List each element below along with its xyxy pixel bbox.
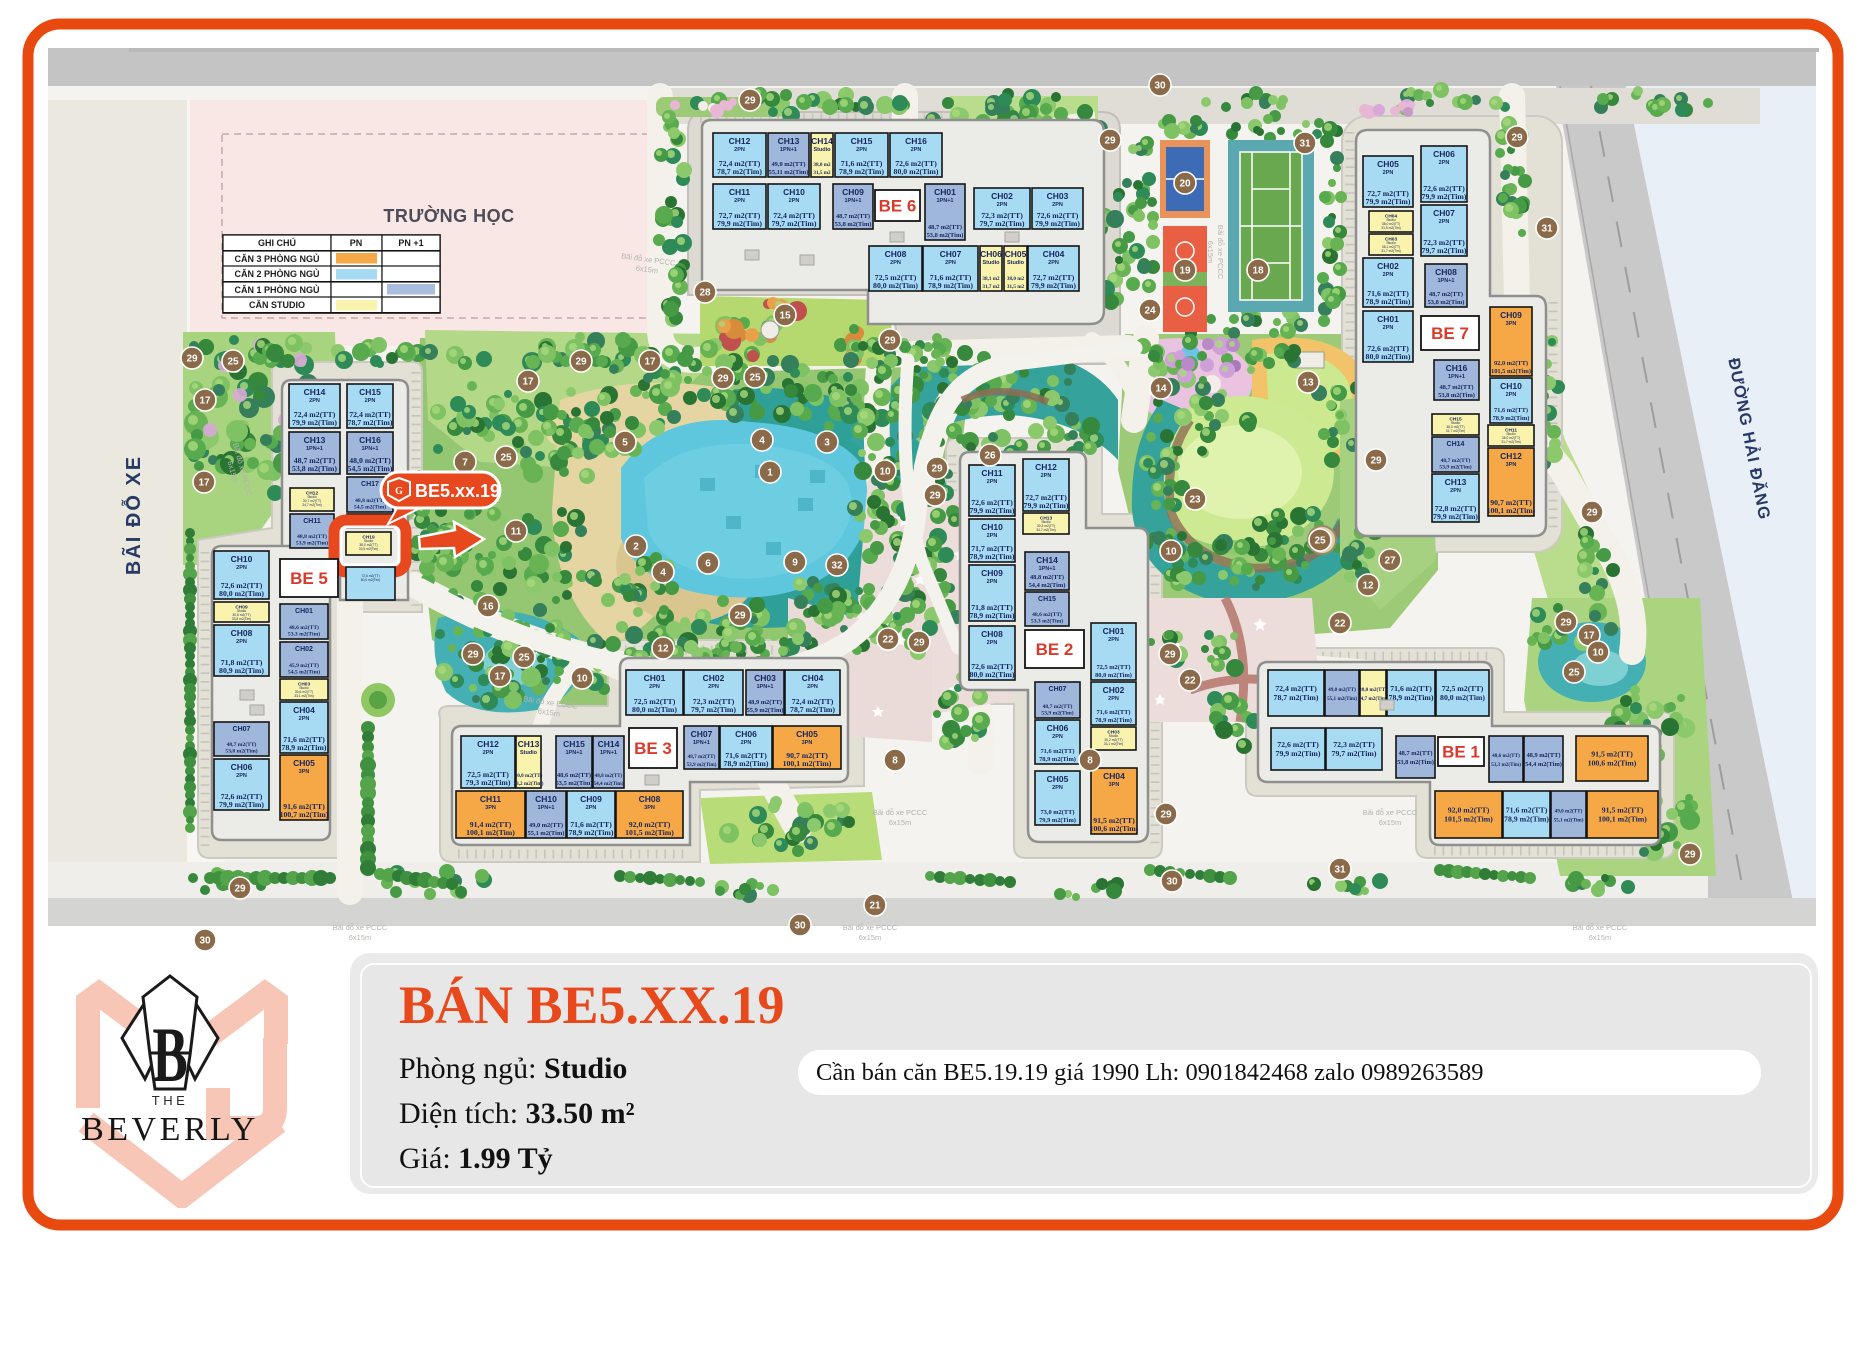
svg-text:2PN: 2PN — [1506, 392, 1517, 398]
svg-text:6x15m: 6x15m — [1379, 818, 1402, 827]
svg-text:BE 6: BE 6 — [879, 197, 917, 216]
svg-text:48,6 m2(TT): 48,6 m2(TT) — [557, 772, 591, 779]
svg-text:3PN: 3PN — [1109, 782, 1120, 788]
svg-text:79,9 m2(Tim): 79,9 m2(Tim) — [1039, 817, 1076, 824]
svg-text:CH02: CH02 — [1377, 261, 1399, 271]
svg-text:80,0 m2(Tim): 80,0 m2(Tim) — [873, 281, 918, 290]
svg-text:2PN: 2PN — [708, 684, 719, 690]
svg-text:CH06: CH06 — [1433, 149, 1455, 159]
svg-text:78,7 m2(Tim): 78,7 m2(Tim) — [1274, 693, 1319, 702]
svg-text:2PN: 2PN — [987, 533, 998, 539]
svg-text:79,9 m2(Tim): 79,9 m2(Tim) — [1422, 192, 1467, 201]
svg-text:48,7 m2(TT): 48,7 m2(TT) — [1439, 384, 1473, 391]
svg-text:12: 12 — [1362, 581, 1374, 592]
svg-text:1PN+1: 1PN+1 — [780, 147, 797, 153]
svg-text:1PN+1: 1PN+1 — [306, 446, 323, 452]
svg-text:CH09: CH09 — [842, 187, 864, 197]
svg-text:CH08: CH08 — [639, 794, 661, 804]
svg-text:49,0 m2(TT): 49,0 m2(TT) — [1328, 686, 1356, 693]
svg-text:Studio: Studio — [982, 260, 1000, 266]
svg-text:Bãi đỗ xe PCCC: Bãi đỗ xe PCCC — [843, 923, 898, 932]
svg-text:CH14: CH14 — [304, 387, 326, 397]
svg-text:78,7 m2(Tim): 78,7 m2(Tim) — [348, 418, 393, 427]
svg-text:100,1 m2(Tim): 100,1 m2(Tim) — [466, 828, 515, 837]
svg-text:79,9 m2(Tim): 79,9 m2(Tim) — [1276, 749, 1321, 758]
svg-text:25: 25 — [749, 373, 761, 384]
svg-text:29: 29 — [1511, 133, 1523, 144]
svg-text:29: 29 — [234, 884, 246, 895]
svg-text:CH03: CH03 — [1047, 191, 1069, 201]
svg-text:CH06: CH06 — [231, 762, 253, 772]
svg-text:1PN+1: 1PN+1 — [362, 446, 379, 452]
svg-text:79,9 m2(Tim): 79,9 m2(Tim) — [1366, 197, 1411, 206]
svg-text:2PN: 2PN — [890, 260, 901, 266]
svg-text:78,9 m2(Tim): 78,9 m2(Tim) — [1039, 756, 1076, 763]
svg-text:2PN: 2PN — [299, 716, 310, 722]
svg-text:CH02: CH02 — [703, 673, 725, 683]
svg-text:29: 29 — [913, 638, 925, 649]
svg-text:3PN: 3PN — [1506, 462, 1517, 468]
svg-text:29: 29 — [717, 374, 729, 385]
svg-text:10: 10 — [1592, 648, 1604, 659]
svg-text:31,7 m2(Tim): 31,7 m2(Tim) — [1381, 249, 1400, 253]
svg-text:71,6 m2(TT): 71,6 m2(TT) — [1494, 407, 1528, 414]
svg-text:CH14: CH14 — [1036, 555, 1058, 565]
svg-text:78,9 m2(Tim): 78,9 m2(Tim) — [724, 759, 769, 768]
svg-text:PN: PN — [350, 238, 363, 248]
svg-text:38,0 m2: 38,0 m2 — [813, 162, 831, 168]
svg-text:53,8 m2(Tim): 53,8 m2(Tim) — [225, 748, 257, 755]
svg-text:12: 12 — [657, 644, 669, 655]
svg-text:79,9 m2(Tim): 79,9 m2(Tim) — [717, 219, 762, 228]
svg-text:11: 11 — [511, 527, 522, 538]
svg-text:79,9 m2(Tim): 79,9 m2(Tim) — [1024, 501, 1069, 510]
svg-text:Bãi đỗ xe PCCC: Bãi đỗ xe PCCC — [1573, 923, 1628, 932]
svg-text:38,1 m2: 38,1 m2 — [982, 276, 1000, 282]
svg-text:21: 21 — [869, 901, 881, 912]
svg-text:CH11: CH11 — [303, 518, 321, 525]
svg-text:2PN: 2PN — [1383, 170, 1394, 176]
svg-text:18: 18 — [1252, 266, 1264, 277]
svg-text:33,2 m2(Tim): 33,2 m2(Tim) — [514, 780, 544, 787]
svg-text:CH12: CH12 — [1035, 462, 1057, 472]
svg-text:CH09: CH09 — [981, 568, 1003, 578]
svg-text:27: 27 — [1384, 556, 1396, 567]
svg-text:2PN: 2PN — [987, 479, 998, 485]
svg-text:20: 20 — [1179, 179, 1191, 190]
svg-text:8: 8 — [892, 756, 898, 767]
svg-text:54,5 m2(Tim): 54,5 m2(Tim) — [288, 669, 320, 676]
svg-text:THE: THE — [152, 1093, 189, 1108]
svg-text:CH04: CH04 — [1043, 249, 1065, 259]
svg-text:71,6 m2(TT): 71,6 m2(TT) — [1040, 748, 1074, 755]
svg-text:79,9 m2(Tim): 79,9 m2(Tim) — [1433, 512, 1478, 521]
svg-text:53,9 m2(Tim): 53,9 m2(Tim) — [687, 761, 717, 768]
svg-text:29: 29 — [929, 491, 941, 502]
svg-text:79,7 m2(Tim): 79,7 m2(Tim) — [1332, 749, 1377, 758]
svg-text:CH13: CH13 — [778, 136, 800, 146]
svg-text:CH12: CH12 — [477, 739, 499, 749]
svg-text:55,11 m2(Tim): 55,11 m2(Tim) — [769, 169, 809, 176]
svg-text:53,5 m2(Tim): 53,5 m2(Tim) — [556, 780, 593, 787]
svg-text:6x15m: 6x15m — [1206, 241, 1215, 264]
svg-text:5: 5 — [622, 438, 628, 449]
svg-text:2PN: 2PN — [734, 198, 745, 204]
svg-text:2PN: 2PN — [586, 805, 597, 811]
svg-text:49,0 m2(TT): 49,0 m2(TT) — [771, 161, 805, 168]
svg-text:CH08: CH08 — [885, 249, 907, 259]
svg-text:33,5 m2(Tim): 33,5 m2(Tim) — [359, 547, 378, 551]
svg-text:72,5 m2(TT): 72,5 m2(TT) — [1442, 684, 1484, 693]
svg-text:CH05: CH05 — [1047, 774, 1069, 784]
svg-text:CH05: CH05 — [796, 729, 818, 739]
svg-text:53,8 m2(Tim): 53,8 m2(Tim) — [835, 221, 872, 228]
svg-text:6: 6 — [705, 559, 711, 570]
svg-text:45,9 m2(TT): 45,9 m2(TT) — [289, 662, 319, 669]
svg-text:BE 3: BE 3 — [634, 739, 672, 758]
svg-text:CH02: CH02 — [1103, 685, 1125, 695]
svg-text:78,9 m2(Tim): 78,9 m2(Tim) — [970, 552, 1015, 561]
svg-text:CĂN STUDIO: CĂN STUDIO — [249, 300, 305, 310]
svg-text:CH17: CH17 — [361, 481, 379, 488]
svg-text:25: 25 — [500, 453, 512, 464]
svg-text:30: 30 — [1166, 877, 1178, 888]
svg-text:CH01: CH01 — [644, 673, 666, 683]
svg-text:33,8 m2(Tim): 33,8 m2(Tim) — [232, 617, 251, 621]
svg-text:53,9 m2(Tim): 53,9 m2(Tim) — [1439, 464, 1471, 471]
svg-text:19: 19 — [1179, 266, 1191, 277]
svg-text:2PN: 2PN — [1450, 488, 1461, 494]
svg-text:14: 14 — [1155, 384, 1167, 395]
svg-text:26: 26 — [984, 451, 996, 462]
svg-text:CH10: CH10 — [783, 187, 805, 197]
svg-text:30,0 m2(TT): 30,0 m2(TT) — [515, 772, 543, 779]
svg-text:17: 17 — [199, 396, 211, 407]
svg-text:3PN: 3PN — [485, 805, 496, 811]
svg-text:CH15: CH15 — [1038, 596, 1056, 603]
svg-text:29: 29 — [734, 611, 746, 622]
svg-text:34,7 m2(Tim): 34,7 m2(Tim) — [302, 503, 321, 507]
svg-text:3PN: 3PN — [299, 769, 310, 775]
svg-text:2PN: 2PN — [483, 750, 494, 756]
svg-text:72,5 m2(TT): 72,5 m2(TT) — [1096, 664, 1130, 671]
svg-text:6x15m: 6x15m — [1589, 933, 1612, 942]
svg-text:CH13: CH13 — [304, 435, 326, 445]
svg-text:2PN: 2PN — [1048, 260, 1059, 266]
svg-text:GHI CHÚ: GHI CHÚ — [258, 237, 296, 248]
svg-text:100,1 m2(Tim): 100,1 m2(Tim) — [1598, 815, 1647, 824]
svg-text:2PN: 2PN — [1108, 696, 1119, 702]
svg-text:CH02: CH02 — [295, 646, 313, 653]
svg-text:PN +1: PN +1 — [398, 238, 423, 248]
svg-text:29: 29 — [931, 464, 943, 475]
svg-text:101,5 m2(Tim): 101,5 m2(Tim) — [625, 828, 674, 837]
svg-text:53,8 m2(Tim): 53,8 m2(Tim) — [1438, 392, 1475, 399]
svg-text:31: 31 — [1299, 139, 1311, 150]
svg-text:48,7 m2(TT): 48,7 m2(TT) — [1441, 457, 1471, 464]
svg-text:79,9 m2(Tim): 79,9 m2(Tim) — [1035, 219, 1080, 228]
svg-text:48,6 m2(TT): 48,6 m2(TT) — [1492, 752, 1520, 759]
svg-text:CH04: CH04 — [802, 673, 824, 683]
svg-text:54,4 m2(Tim): 54,4 m2(Tim) — [594, 780, 624, 787]
svg-text:80,0 m2(Tim): 80,0 m2(Tim) — [970, 670, 1015, 679]
svg-text:2PN: 2PN — [1052, 202, 1063, 208]
svg-text:2PN: 2PN — [1041, 473, 1052, 479]
svg-text:48,7 m2(TT): 48,7 m2(TT) — [1398, 750, 1432, 757]
svg-text:91,5 m2(TT): 91,5 m2(TT) — [1591, 750, 1633, 759]
svg-text:CH04: CH04 — [293, 705, 315, 715]
svg-text:CH08: CH08 — [981, 629, 1003, 639]
svg-text:78,9 m2(Tim): 78,9 m2(Tim) — [970, 611, 1015, 620]
svg-text:100,7 m2(Tim): 100,7 m2(Tim) — [280, 810, 329, 819]
svg-text:29: 29 — [186, 354, 198, 365]
svg-text:32: 32 — [831, 561, 843, 572]
svg-text:80,0 m2(Tim): 80,0 m2(Tim) — [1440, 693, 1485, 702]
svg-text:CH09: CH09 — [1500, 310, 1522, 320]
svg-text:CĂN 1 PHÒNG NGỦ: CĂN 1 PHÒNG NGỦ — [234, 284, 319, 295]
svg-text:92,0 m2(TT): 92,0 m2(TT) — [1448, 806, 1490, 815]
svg-text:CH04: CH04 — [1103, 771, 1125, 781]
svg-text:24: 24 — [1144, 306, 1156, 317]
svg-text:25: 25 — [518, 653, 530, 664]
svg-text:2PN: 2PN — [1052, 734, 1063, 740]
svg-text:CH05: CH05 — [1005, 249, 1027, 259]
svg-text:78,9 m2(Tim): 78,9 m2(Tim) — [839, 167, 884, 176]
svg-text:CH10: CH10 — [535, 794, 557, 804]
svg-text:2PN: 2PN — [741, 740, 752, 746]
svg-text:78,9 m2(Tim): 78,9 m2(Tim) — [569, 828, 614, 837]
svg-text:2PN: 2PN — [1383, 325, 1394, 331]
svg-text:72,6 m2(TT): 72,6 m2(TT) — [1277, 740, 1319, 749]
svg-text:79,9 m2(Tim): 79,9 m2(Tim) — [219, 800, 264, 809]
svg-text:CH10: CH10 — [1500, 381, 1522, 391]
svg-text:79,9 m2(Tim): 79,9 m2(Tim) — [1031, 281, 1076, 290]
svg-text:48,7 m2(TT): 48,7 m2(TT) — [836, 213, 870, 220]
svg-text:6x15m: 6x15m — [889, 818, 912, 827]
svg-text:79,7 m2(Tim): 79,7 m2(Tim) — [980, 219, 1025, 228]
svg-text:3PN: 3PN — [802, 740, 813, 746]
svg-text:BE 1: BE 1 — [1442, 743, 1480, 762]
svg-text:72,3 m2(TT): 72,3 m2(TT) — [1333, 740, 1375, 749]
svg-text:53,8 m2(Tim): 53,8 m2(Tim) — [1397, 759, 1434, 766]
svg-text:2PN: 2PN — [734, 147, 745, 153]
svg-text:29: 29 — [1160, 810, 1172, 821]
svg-text:1PN+1: 1PN+1 — [1438, 278, 1455, 284]
svg-text:1PN+1: 1PN+1 — [538, 805, 555, 811]
svg-text:79,3 m2(Tim): 79,3 m2(Tim) — [466, 778, 511, 787]
svg-text:29: 29 — [884, 336, 896, 347]
svg-text:1PN+1: 1PN+1 — [1448, 374, 1465, 380]
svg-text:48,9 m2(TT): 48,9 m2(TT) — [748, 699, 782, 706]
svg-text:3PN: 3PN — [644, 805, 655, 811]
svg-text:CH06: CH06 — [735, 729, 757, 739]
svg-text:71,6 m2(TT): 71,6 m2(TT) — [1506, 806, 1548, 815]
svg-text:29: 29 — [1684, 850, 1696, 861]
svg-text:2PN: 2PN — [945, 260, 956, 266]
svg-text:29: 29 — [1560, 618, 1572, 629]
svg-text:54,4 m2(Tim): 54,4 m2(Tim) — [1029, 582, 1066, 589]
svg-text:23: 23 — [1189, 495, 1201, 506]
svg-text:2PN: 2PN — [649, 684, 660, 690]
svg-text:78,9 m2(Tim): 78,9 m2(Tim) — [1504, 815, 1549, 824]
svg-text:48,8 m2(TT): 48,8 m2(TT) — [595, 772, 623, 779]
svg-text:80,0 m2(Tim): 80,0 m2(Tim) — [361, 578, 380, 582]
svg-text:100,6 m2(Tim): 100,6 m2(Tim) — [1090, 824, 1139, 833]
svg-text:38,0 m2(TT): 38,0 m2(TT) — [1359, 686, 1387, 693]
svg-text:6x15m: 6x15m — [859, 933, 882, 942]
svg-text:CH01: CH01 — [934, 187, 956, 197]
svg-text:48,7 m2(TT): 48,7 m2(TT) — [928, 224, 962, 231]
svg-text:34,7 m2(Tim): 34,7 m2(Tim) — [1036, 528, 1055, 532]
svg-text:29: 29 — [467, 650, 479, 661]
svg-text:1PN+1: 1PN+1 — [845, 198, 862, 204]
svg-text:53,8 m2(Tim): 53,8 m2(Tim) — [927, 232, 964, 239]
svg-text:33,1 m2(Tim): 33,1 m2(Tim) — [1104, 742, 1123, 746]
svg-text:2PN: 2PN — [789, 198, 800, 204]
svg-text:Studio: Studio — [813, 147, 831, 153]
svg-text:2: 2 — [633, 542, 639, 553]
svg-text:CH02: CH02 — [991, 191, 1013, 201]
svg-text:78,9 m2(Tim): 78,9 m2(Tim) — [1493, 415, 1530, 422]
svg-text:CH07: CH07 — [1433, 208, 1455, 218]
svg-text:CH16: CH16 — [359, 435, 381, 445]
svg-text:BE 2: BE 2 — [1036, 640, 1074, 659]
svg-text:31,7 m2(Tim): 31,7 m2(Tim) — [1501, 440, 1520, 444]
svg-text:17: 17 — [494, 672, 506, 683]
svg-text:Bãi đỗ xe PCCC: Bãi đỗ xe PCCC — [873, 808, 928, 817]
svg-text:33,1 m2(Tim): 33,1 m2(Tim) — [294, 694, 313, 698]
svg-text:CH14: CH14 — [1447, 441, 1465, 448]
svg-text:78,9 m2(Tim): 78,9 m2(Tim) — [928, 281, 973, 290]
svg-text:16: 16 — [482, 602, 494, 613]
svg-text:CH07: CH07 — [233, 726, 251, 733]
svg-text:2PN: 2PN — [1439, 160, 1450, 166]
svg-text:53,9 m2(Tim): 53,9 m2(Tim) — [296, 540, 328, 547]
svg-text:48,8 m2(TT): 48,8 m2(TT) — [297, 533, 327, 540]
svg-text:10: 10 — [879, 467, 891, 478]
svg-text:CH01: CH01 — [295, 608, 313, 615]
svg-text:CH01: CH01 — [1103, 626, 1125, 636]
svg-text:71,6 m2(TT): 71,6 m2(TT) — [1096, 709, 1130, 716]
svg-text:CH13: CH13 — [1445, 477, 1467, 487]
svg-text:2PN: 2PN — [997, 202, 1008, 208]
svg-text:100,1 m2(Tim): 100,1 m2(Tim) — [1487, 506, 1536, 515]
svg-text:101,5 m2(Tim): 101,5 m2(Tim) — [1444, 815, 1493, 824]
svg-text:1PN+1: 1PN+1 — [566, 750, 583, 756]
svg-text:CH14: CH14 — [598, 739, 620, 749]
svg-text:29: 29 — [744, 96, 756, 107]
svg-text:22: 22 — [1184, 676, 1196, 687]
svg-text:CH11: CH11 — [729, 187, 751, 197]
svg-text:CĂN 2 PHÒNG NGỦ: CĂN 2 PHÒNG NGỦ — [234, 268, 319, 279]
svg-text:100,1 m2(Tim): 100,1 m2(Tim) — [783, 759, 832, 768]
svg-text:54,4 m2(Tim): 54,4 m2(Tim) — [1525, 761, 1562, 768]
svg-text:55,1 m2(Tim): 55,1 m2(Tim) — [528, 830, 565, 837]
svg-text:CH03: CH03 — [754, 673, 776, 683]
svg-text:BÃI ĐỖ XE: BÃI ĐỖ XE — [121, 455, 145, 575]
svg-text:CH05: CH05 — [1377, 159, 1399, 169]
svg-text:CH09: CH09 — [580, 794, 602, 804]
svg-text:25: 25 — [1568, 668, 1580, 679]
svg-text:2PN: 2PN — [236, 565, 247, 571]
svg-text:53,8 m2(Tim): 53,8 m2(Tim) — [292, 464, 337, 473]
svg-text:10: 10 — [1165, 547, 1177, 558]
svg-text:2PN: 2PN — [309, 398, 320, 404]
svg-text:79,7 m2(Tim): 79,7 m2(Tim) — [1422, 246, 1467, 255]
svg-text:17: 17 — [198, 478, 210, 489]
svg-text:31: 31 — [1541, 224, 1553, 235]
svg-text:53,3 m2(Tim): 53,3 m2(Tim) — [1491, 761, 1521, 768]
svg-text:29: 29 — [1104, 136, 1116, 147]
svg-text:CH11: CH11 — [981, 468, 1003, 478]
svg-text:80,0 m2(Tim): 80,0 m2(Tim) — [632, 705, 677, 714]
svg-text:CH16: CH16 — [1446, 363, 1468, 373]
svg-text:78,9 m2(Tim): 78,9 m2(Tim) — [1366, 297, 1411, 306]
svg-text:92,0 m2(TT): 92,0 m2(TT) — [1494, 360, 1528, 367]
svg-text:54,5 m2(Tim): 54,5 m2(Tim) — [354, 504, 386, 511]
svg-text:CH11: CH11 — [480, 794, 502, 804]
svg-text:CH08: CH08 — [231, 628, 253, 638]
svg-text:31,5 m2: 31,5 m2 — [1007, 284, 1025, 290]
svg-text:2PN: 2PN — [1439, 219, 1450, 225]
svg-text:BE 7: BE 7 — [1431, 324, 1469, 343]
svg-text:CH13: CH13 — [518, 739, 540, 749]
svg-text:2PN: 2PN — [1108, 637, 1119, 643]
svg-text:22: 22 — [1334, 619, 1346, 630]
svg-text:17: 17 — [522, 377, 534, 388]
svg-text:6x15m: 6x15m — [349, 933, 372, 942]
svg-text:1: 1 — [767, 468, 773, 479]
svg-text:BE 5: BE 5 — [290, 569, 328, 588]
svg-text:31,7 m2: 31,7 m2 — [982, 284, 1000, 290]
svg-text:48,7 m2(TT): 48,7 m2(TT) — [1429, 291, 1463, 298]
svg-text:1PN+1: 1PN+1 — [693, 740, 710, 746]
svg-text:BEVERLY: BEVERLY — [81, 1111, 259, 1148]
svg-text:78,9 m2(Tim): 78,9 m2(Tim) — [282, 743, 327, 752]
svg-text:7: 7 — [462, 458, 468, 469]
svg-text:100,6 m2(Tim): 100,6 m2(Tim) — [1588, 759, 1637, 768]
svg-text:2PN: 2PN — [807, 684, 818, 690]
svg-text:10: 10 — [576, 674, 588, 685]
svg-text:48,6 m2(TT): 48,6 m2(TT) — [1032, 611, 1062, 618]
svg-text:CH15: CH15 — [851, 136, 873, 146]
svg-text:91,5 m2(TT): 91,5 m2(TT) — [1602, 806, 1644, 815]
svg-text:TRƯỜNG HỌC: TRƯỜNG HỌC — [383, 205, 514, 226]
svg-text:1PN+1: 1PN+1 — [600, 750, 617, 756]
svg-text:80,0 m2(Tim): 80,0 m2(Tim) — [894, 167, 939, 176]
svg-text:49,0 m2(TT): 49,0 m2(TT) — [529, 822, 563, 829]
svg-text:4: 4 — [660, 568, 666, 579]
svg-text:CH07: CH07 — [940, 249, 962, 259]
svg-text:2PN: 2PN — [987, 579, 998, 585]
svg-text:30: 30 — [1154, 81, 1166, 92]
svg-text:CH10: CH10 — [231, 554, 253, 564]
svg-text:31: 31 — [1334, 865, 1346, 876]
svg-text:80,9 m2(Tim): 80,9 m2(Tim) — [219, 666, 264, 675]
svg-text:29: 29 — [1370, 456, 1382, 467]
svg-text:55,1 m2(Tim): 55,1 m2(Tim) — [1554, 817, 1584, 824]
svg-text:CH15: CH15 — [359, 387, 381, 397]
svg-text:53,3 m2(Tim): 53,3 m2(Tim) — [288, 631, 320, 638]
svg-text:25: 25 — [1314, 536, 1326, 547]
svg-text:29: 29 — [1586, 508, 1598, 519]
svg-text:CH14: CH14 — [811, 136, 833, 146]
svg-text:CH15: CH15 — [563, 739, 585, 749]
svg-text:CH16: CH16 — [905, 136, 927, 146]
svg-text:2PN: 2PN — [236, 773, 247, 779]
svg-text:BE5.xx.19: BE5.xx.19 — [415, 481, 500, 501]
svg-text:78,9 m2(Tim): 78,9 m2(Tim) — [1095, 717, 1132, 724]
